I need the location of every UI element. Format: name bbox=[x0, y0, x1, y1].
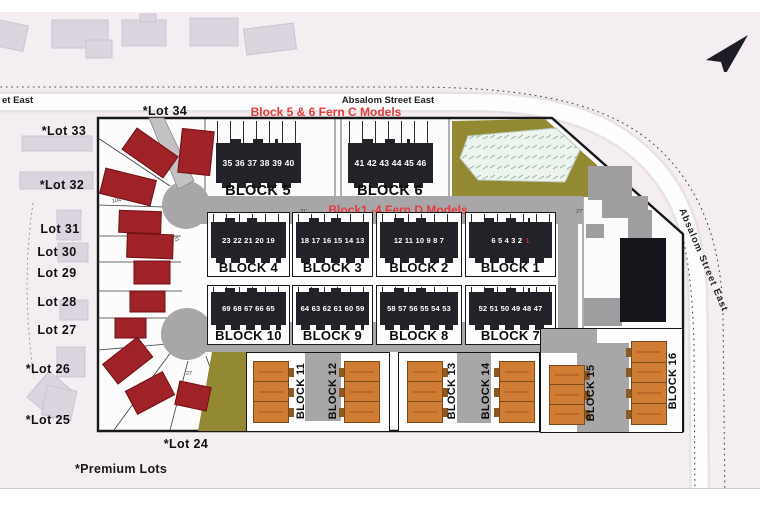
unit bbox=[632, 404, 666, 425]
block-11-12-panel bbox=[246, 352, 390, 432]
block-11-label: BLOCK 11 bbox=[295, 356, 307, 426]
block-8-cell: 58 57 56 55 54 53 BLOCK 8 bbox=[376, 285, 462, 345]
fern-c-annotation: Block 5 & 6 Fern C Models bbox=[226, 105, 426, 119]
lot-label-33: *Lot 33 bbox=[24, 124, 104, 138]
unit bbox=[254, 402, 288, 422]
block-2-units: 12 11 10 9 8 7 bbox=[394, 236, 444, 245]
page-margin-top bbox=[0, 0, 760, 12]
dim-label: 27' bbox=[576, 209, 583, 215]
block-3-building: 18 17 16 15 14 13 bbox=[296, 222, 369, 258]
unit bbox=[550, 366, 584, 385]
block-9-units: 64 63 62 61 60 59 bbox=[301, 304, 365, 313]
lot-label-28: Lot 28 bbox=[17, 295, 97, 309]
unit bbox=[550, 405, 584, 424]
lot-label-31: Lot 31 bbox=[20, 222, 100, 236]
unit bbox=[550, 385, 584, 404]
site-plan-page: et East Absalom Street East Absalom Stre… bbox=[0, 0, 760, 505]
block-15-label: BLOCK 15 bbox=[585, 358, 597, 428]
block-12-label: BLOCK 12 bbox=[327, 356, 339, 426]
lot-label-24: *Lot 24 bbox=[146, 437, 226, 451]
block-8-units: 58 57 56 55 54 53 bbox=[387, 304, 451, 313]
block-2-building: 12 11 10 9 8 7 bbox=[380, 222, 458, 258]
unit bbox=[500, 382, 534, 402]
unit bbox=[408, 382, 442, 402]
block-9-label: BLOCK 9 bbox=[293, 328, 372, 343]
block-5-units: 35 36 37 38 39 40 bbox=[223, 158, 295, 168]
block-15-16-panel bbox=[540, 328, 683, 433]
block-10-building: 69 68 67 66 65 bbox=[211, 292, 286, 325]
block-6-units: 41 42 43 44 45 46 bbox=[355, 158, 427, 168]
lot-label-29: Lot 29 bbox=[17, 266, 97, 280]
dim-label: 27 bbox=[186, 371, 192, 377]
block-4-building: 23 22 21 20 19 bbox=[211, 222, 286, 258]
block-1-unit-1: 1 bbox=[525, 236, 529, 245]
premium-lots-note: *Premium Lots bbox=[75, 462, 167, 476]
block-15-building bbox=[549, 365, 585, 425]
block-1-label: BLOCK 1 bbox=[466, 260, 555, 275]
lot-label-26: *Lot 26 bbox=[8, 362, 88, 376]
block-16-building bbox=[631, 341, 667, 425]
block-3-cell: 18 17 16 15 14 13 BLOCK 3 bbox=[292, 212, 373, 277]
block-4-label: BLOCK 4 bbox=[208, 260, 289, 275]
block-3-label: BLOCK 3 bbox=[293, 260, 372, 275]
unit bbox=[632, 363, 666, 384]
lot-label-34: *Lot 34 bbox=[125, 104, 205, 118]
page-margin-bottom bbox=[0, 488, 760, 505]
block-6-label: BLOCK 6 bbox=[330, 183, 450, 199]
block-4-cell: 23 22 21 20 19 BLOCK 4 bbox=[207, 212, 290, 277]
block-8-building: 58 57 56 55 54 53 bbox=[380, 292, 458, 325]
north-arrow-icon bbox=[698, 30, 754, 72]
lot-label-30: Lot 30 bbox=[17, 245, 97, 259]
block-7-units: 52 51 50 49 48 47 bbox=[479, 304, 543, 313]
dark-building bbox=[620, 238, 666, 322]
block-12-building bbox=[344, 361, 380, 423]
lot-label-25: *Lot 25 bbox=[8, 413, 88, 427]
unit bbox=[500, 402, 534, 422]
block-8-label: BLOCK 8 bbox=[377, 328, 461, 343]
unit bbox=[254, 362, 288, 382]
block-10-label: BLOCK 10 bbox=[208, 328, 289, 343]
block-2-label: BLOCK 2 bbox=[377, 260, 461, 275]
street-label-left: et East bbox=[2, 95, 33, 106]
unit bbox=[345, 382, 379, 402]
pond bbox=[460, 128, 580, 182]
block-10-cell: 69 68 67 66 65 BLOCK 10 bbox=[207, 285, 290, 345]
block-9-building: 64 63 62 61 60 59 bbox=[296, 292, 369, 325]
block-13-building bbox=[407, 361, 443, 423]
unit bbox=[345, 402, 379, 422]
unit bbox=[345, 362, 379, 382]
block-2-cell: 12 11 10 9 8 7 BLOCK 2 bbox=[376, 212, 462, 277]
block-13-14-panel bbox=[398, 352, 540, 432]
block-13-label: BLOCK 13 bbox=[446, 356, 458, 426]
unit bbox=[500, 362, 534, 382]
block-14-label: BLOCK 14 bbox=[480, 356, 492, 426]
existing-houses-north bbox=[0, 14, 296, 58]
block-3-units: 18 17 16 15 14 13 bbox=[301, 236, 365, 245]
unit bbox=[254, 382, 288, 402]
block-9-cell: 64 63 62 61 60 59 BLOCK 9 bbox=[292, 285, 373, 345]
lot-label-27: Lot 27 bbox=[17, 323, 97, 337]
unit bbox=[408, 362, 442, 382]
block-7-building: 52 51 50 49 48 47 bbox=[469, 292, 552, 325]
block-1-cell: 6 5 4 3 2 1 BLOCK 1 bbox=[465, 212, 556, 277]
block-5-building: 35 36 37 38 39 40 bbox=[216, 143, 301, 183]
block-4-units: 23 22 21 20 19 bbox=[222, 236, 275, 245]
unit bbox=[632, 383, 666, 404]
block-14-building bbox=[499, 361, 535, 423]
block-1-units: 6 5 4 3 2 bbox=[491, 236, 522, 245]
unit bbox=[408, 402, 442, 422]
lot-label-32: *Lot 32 bbox=[22, 178, 102, 192]
block-5-label: BLOCK 5 bbox=[198, 183, 318, 199]
block-10-units: 69 68 67 66 65 bbox=[222, 304, 275, 313]
block-11-building bbox=[253, 361, 289, 423]
block-16-label: BLOCK 16 bbox=[667, 346, 679, 416]
block-6-building: 41 42 43 44 45 46 bbox=[348, 143, 433, 183]
block-1-building: 6 5 4 3 2 1 bbox=[469, 222, 552, 258]
unit bbox=[632, 342, 666, 363]
